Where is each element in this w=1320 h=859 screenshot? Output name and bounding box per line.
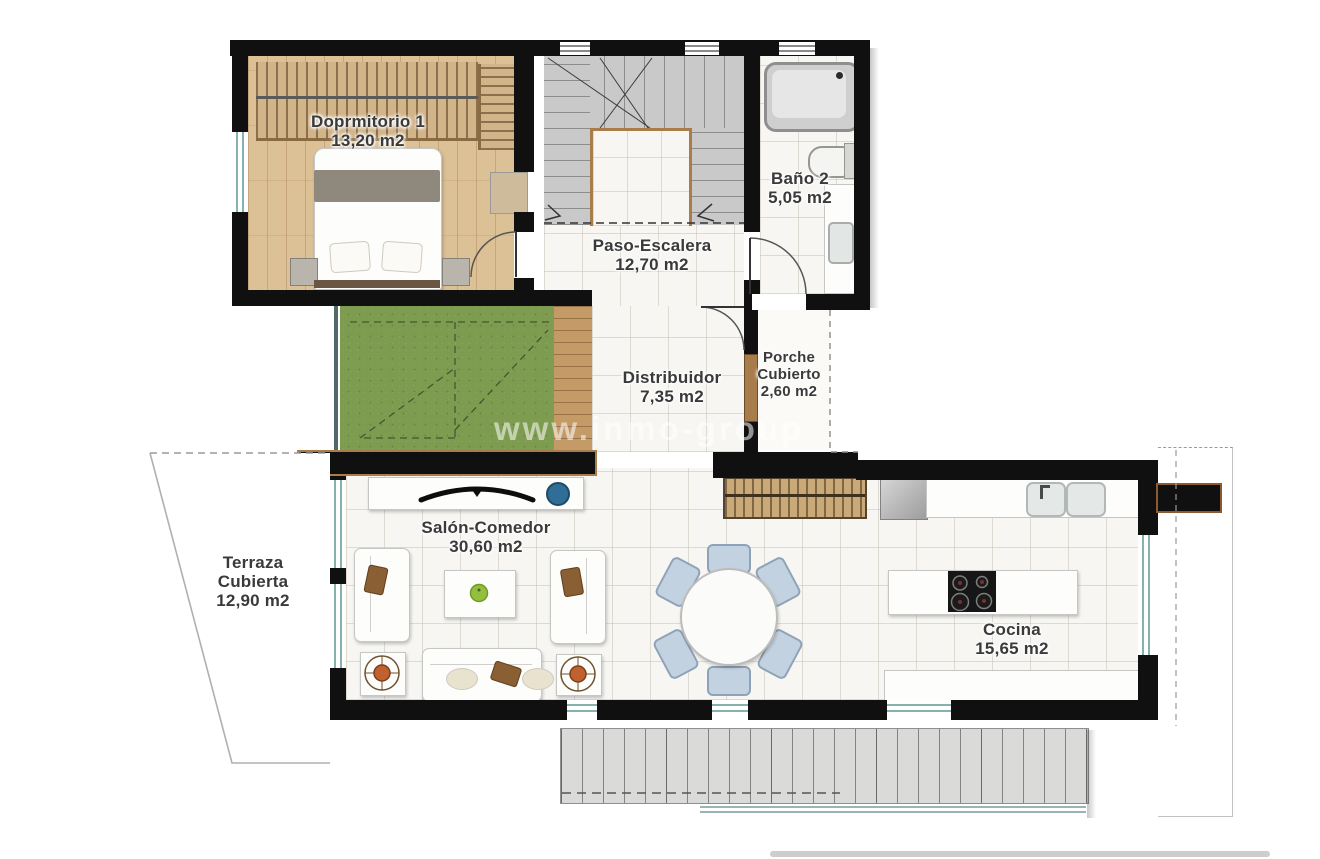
wall (248, 290, 592, 306)
deck-step-edge (700, 806, 1086, 815)
side-table-left (360, 652, 406, 696)
room-name: Doprmitorio 1 (311, 112, 425, 131)
wall (330, 666, 346, 720)
sofa-cushion-beige (446, 668, 478, 690)
room-name: Baño 2 (768, 169, 832, 188)
window (777, 42, 817, 55)
room-label-terraza: Terraza Cubierta 12,90 m2 (216, 553, 289, 611)
stair-flight-left (544, 55, 590, 225)
tv-wall (297, 450, 597, 476)
shower-drain (836, 72, 843, 79)
stair-flight-right (686, 128, 744, 213)
wall (744, 280, 760, 294)
sofa-seam (430, 664, 532, 665)
bed-pillow (329, 241, 371, 274)
room-name: Distribuidor (623, 368, 722, 387)
sofa-cushion-beige (522, 668, 554, 690)
stair-void (590, 128, 692, 226)
window (558, 42, 592, 55)
nightstand (442, 258, 470, 286)
bed-footboard (314, 280, 440, 288)
kitchen-sink (1066, 482, 1106, 517)
room-name: Cocina (975, 620, 1048, 639)
wall-shadow (870, 48, 879, 308)
window (710, 700, 750, 720)
fridge (880, 478, 928, 520)
wall (1138, 460, 1158, 533)
wall (744, 310, 758, 354)
room-area: 7,35 m2 (623, 387, 722, 406)
wall (514, 55, 534, 172)
window (232, 130, 248, 214)
bed-blanket (314, 170, 440, 202)
room-area: 15,65 m2 (975, 639, 1048, 658)
patio-edge (334, 305, 338, 451)
window (1138, 533, 1158, 657)
room-area: 13,20 m2 (311, 131, 425, 150)
room-name: Salón-Comedor (421, 518, 550, 537)
wall (232, 210, 248, 306)
faucet (1040, 485, 1050, 488)
dining-table (680, 568, 778, 666)
bedroom-wardrobe-side (478, 64, 517, 150)
pergola-beam (1156, 483, 1222, 513)
window (683, 42, 721, 55)
dining-chair (707, 666, 751, 696)
shower-tray-inner (772, 70, 846, 118)
wall (514, 212, 534, 232)
window (565, 700, 599, 720)
room-label-distribuidor: Distribuidor 7,35 m2 (623, 368, 722, 406)
coffee-table (444, 570, 516, 618)
room-area: 12,90 m2 (216, 591, 289, 610)
room-label-salon: Salón-Comedor 30,60 m2 (421, 518, 550, 556)
wall (230, 40, 870, 56)
room-label-bano: Baño 2 5,05 m2 (768, 169, 832, 207)
room-name: Paso-Escalera (593, 236, 712, 255)
room-label-porche: Porche Cubierto 2,60 m2 (757, 350, 820, 401)
horizontal-scrollbar[interactable] (770, 851, 1270, 857)
room-label-cocina: Cocina 15,65 m2 (975, 620, 1048, 658)
room-label-paso: Paso-Escalera 12,70 m2 (593, 236, 712, 274)
room-name: Cubierta (216, 572, 289, 591)
bathroom-sink (828, 222, 854, 264)
wall (232, 40, 248, 130)
window (885, 700, 953, 720)
sofa-seam (586, 558, 587, 634)
wall (744, 55, 760, 232)
deck-shadow (1087, 730, 1096, 818)
room-area: 30,60 m2 (421, 537, 550, 556)
room-name: Cubierto (757, 367, 820, 384)
room-area: 5,05 m2 (768, 188, 832, 207)
cooktop (948, 571, 996, 612)
wall (854, 40, 870, 310)
side-table-right (556, 654, 602, 696)
room-label-dormitorio: Doprmitorio 1 13,20 m2 (311, 112, 425, 150)
watermark: www.inmo-group (494, 410, 804, 448)
floor-plan: Doprmitorio 1 13,20 m2 Baño 2 5,05 m2 Pa… (0, 0, 1320, 859)
sofa-right (550, 550, 606, 644)
wall (856, 460, 1158, 480)
wall (744, 294, 752, 310)
bedroom-niche (490, 172, 528, 214)
room-area: 2,60 m2 (757, 384, 820, 401)
wall (514, 278, 534, 291)
room-area: 12,70 m2 (593, 255, 712, 274)
speaker (546, 482, 570, 506)
porch-dashed-edge (830, 310, 858, 452)
lower-deck (560, 728, 1089, 804)
window (330, 582, 346, 670)
wall (806, 294, 870, 310)
room-name: Porche (757, 350, 820, 367)
kitchen-closet (723, 477, 867, 519)
bed-pillow (381, 241, 423, 274)
wall (713, 452, 858, 478)
room-name: Terraza (216, 553, 289, 572)
window (330, 478, 346, 570)
